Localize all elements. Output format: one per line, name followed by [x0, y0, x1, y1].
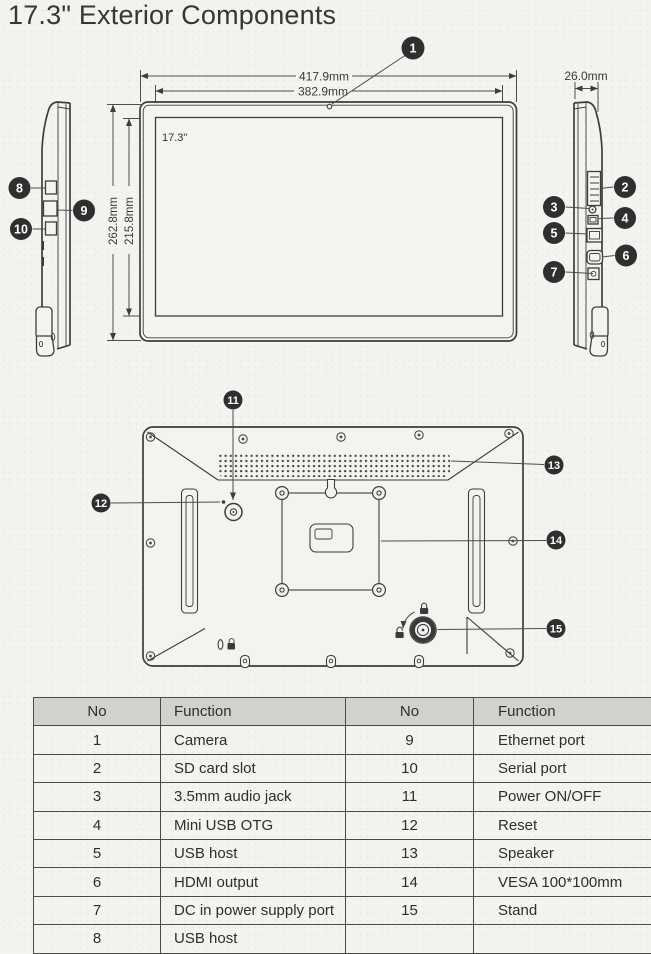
table-header-function-right: Function: [474, 698, 651, 726]
table-header-function-left: Function: [161, 698, 346, 726]
callout-10: 10: [10, 218, 32, 240]
ethernet-port: [44, 201, 58, 216]
callout-11: 11: [224, 391, 243, 410]
table-cell-function: DC in power supply port: [161, 897, 346, 925]
callout-5: 5: [543, 222, 565, 244]
front-bezel: [140, 102, 517, 341]
mini-usb-otg-port: [588, 216, 598, 225]
callout-7: 7: [543, 261, 565, 283]
table-cell-function: 3.5mm audio jack: [161, 783, 346, 811]
hdmi-port: [587, 251, 603, 265]
table-cell-function: Power ON/OFF: [474, 783, 651, 811]
svg-text:7: 7: [551, 265, 558, 279]
audio-jack: [589, 206, 596, 213]
callout-9: 9: [73, 200, 95, 222]
table-cell-no: 3: [34, 783, 161, 811]
serial-port: [46, 222, 57, 235]
outer-width-label: 417.9mm: [299, 70, 349, 84]
left-stand-tab: [36, 307, 54, 356]
exterior-diagram: 26.0mm 417.9mm 382.9mm 262.8mm 215.: [0, 0, 651, 694]
dim-display-height: 215.8mm: [124, 119, 136, 317]
usb-host-port-right: [587, 229, 602, 243]
dim-outer-width: 417.9mm: [141, 70, 517, 84]
table-cell-no: 4: [34, 812, 161, 840]
table-cell-function: Mini USB OTG: [161, 812, 346, 840]
callout-15: 15: [547, 619, 566, 638]
table-cell-no: 15: [346, 897, 474, 925]
side-depth-label: 26.0mm: [564, 69, 607, 83]
dim-display-width: 382.9mm: [156, 85, 503, 99]
svg-text:4: 4: [622, 211, 629, 225]
callout-12: 12: [92, 494, 111, 513]
table-cell-function: Ethernet port: [474, 726, 651, 754]
table-cell-no: 11: [346, 783, 474, 811]
table-cell-function: USB host: [161, 925, 346, 953]
svg-text:1: 1: [410, 41, 417, 55]
speaker-grille: [218, 452, 450, 477]
keyhole-hanger: [325, 480, 336, 498]
table-cell-no: 13: [346, 840, 474, 868]
table-cell-no: 2: [34, 755, 161, 783]
svg-text:2: 2: [622, 180, 629, 194]
right-side-view: 26.0mm: [564, 69, 608, 356]
table-header-no-right: No: [346, 698, 474, 726]
outer-height-label: 262.8mm: [108, 197, 120, 245]
table-cell-function: Serial port: [474, 755, 651, 783]
camera-dot: [327, 104, 332, 109]
screen-size-label: 17.3": [162, 132, 187, 144]
svg-text:5: 5: [551, 226, 558, 240]
display-width-label: 382.9mm: [298, 85, 348, 99]
callout-6: 6: [615, 245, 637, 267]
callout-4: 4: [614, 207, 636, 229]
components-table: No Function No Function 1 Camera 9 Ether…: [33, 697, 651, 954]
callout-2: 2: [614, 176, 636, 198]
svg-text:6: 6: [623, 249, 630, 263]
sd-card-slot: [588, 172, 601, 206]
svg-text:12: 12: [95, 498, 107, 510]
table-cell-no: 8: [34, 925, 161, 953]
svg-text:8: 8: [16, 181, 23, 195]
table-cell-function: HDMI output: [161, 868, 346, 896]
callout-14: 14: [547, 531, 566, 550]
callout-13: 13: [545, 456, 564, 475]
callout-3: 3: [543, 196, 565, 218]
table-cell-no: 10: [346, 755, 474, 783]
svg-text:11: 11: [227, 395, 239, 407]
table-cell-no: 12: [346, 812, 474, 840]
table-cell-no: 5: [34, 840, 161, 868]
svg-text:3: 3: [551, 200, 558, 214]
table-header-no-left: No: [34, 698, 161, 726]
callout-1: 1: [402, 37, 425, 60]
table-cell-no: 6: [34, 868, 161, 896]
callout-8: 8: [9, 177, 31, 199]
dim-outer-height: 262.8mm: [108, 105, 120, 341]
table-cell-function: [474, 925, 651, 953]
table-cell-no: 7: [34, 897, 161, 925]
table-cell-no: 1: [34, 726, 161, 754]
table-cell-function: Camera: [161, 726, 346, 754]
display-height-label: 215.8mm: [124, 197, 136, 245]
svg-text:15: 15: [550, 623, 562, 635]
table-cell-function: Reset: [474, 812, 651, 840]
table-cell-no: 9: [346, 726, 474, 754]
table-cell-function: Stand: [474, 897, 651, 925]
front-view: 417.9mm 382.9mm 262.8mm 215.8mm 17.3": [107, 70, 517, 342]
svg-text:13: 13: [548, 460, 560, 472]
table-cell-function: Speaker: [474, 840, 651, 868]
table-cell-no: [346, 925, 474, 953]
back-view: [143, 427, 523, 668]
svg-text:10: 10: [14, 222, 28, 236]
table-cell-function: USB host: [161, 840, 346, 868]
table-cell-no: 14: [346, 868, 474, 896]
usb-host-port-left: [46, 181, 57, 194]
svg-text:9: 9: [81, 204, 88, 218]
reset-hole: [222, 500, 226, 504]
table-cell-function: SD card slot: [161, 755, 346, 783]
table-cell-function: VESA 100*100mm: [474, 868, 651, 896]
svg-text:14: 14: [550, 535, 563, 547]
